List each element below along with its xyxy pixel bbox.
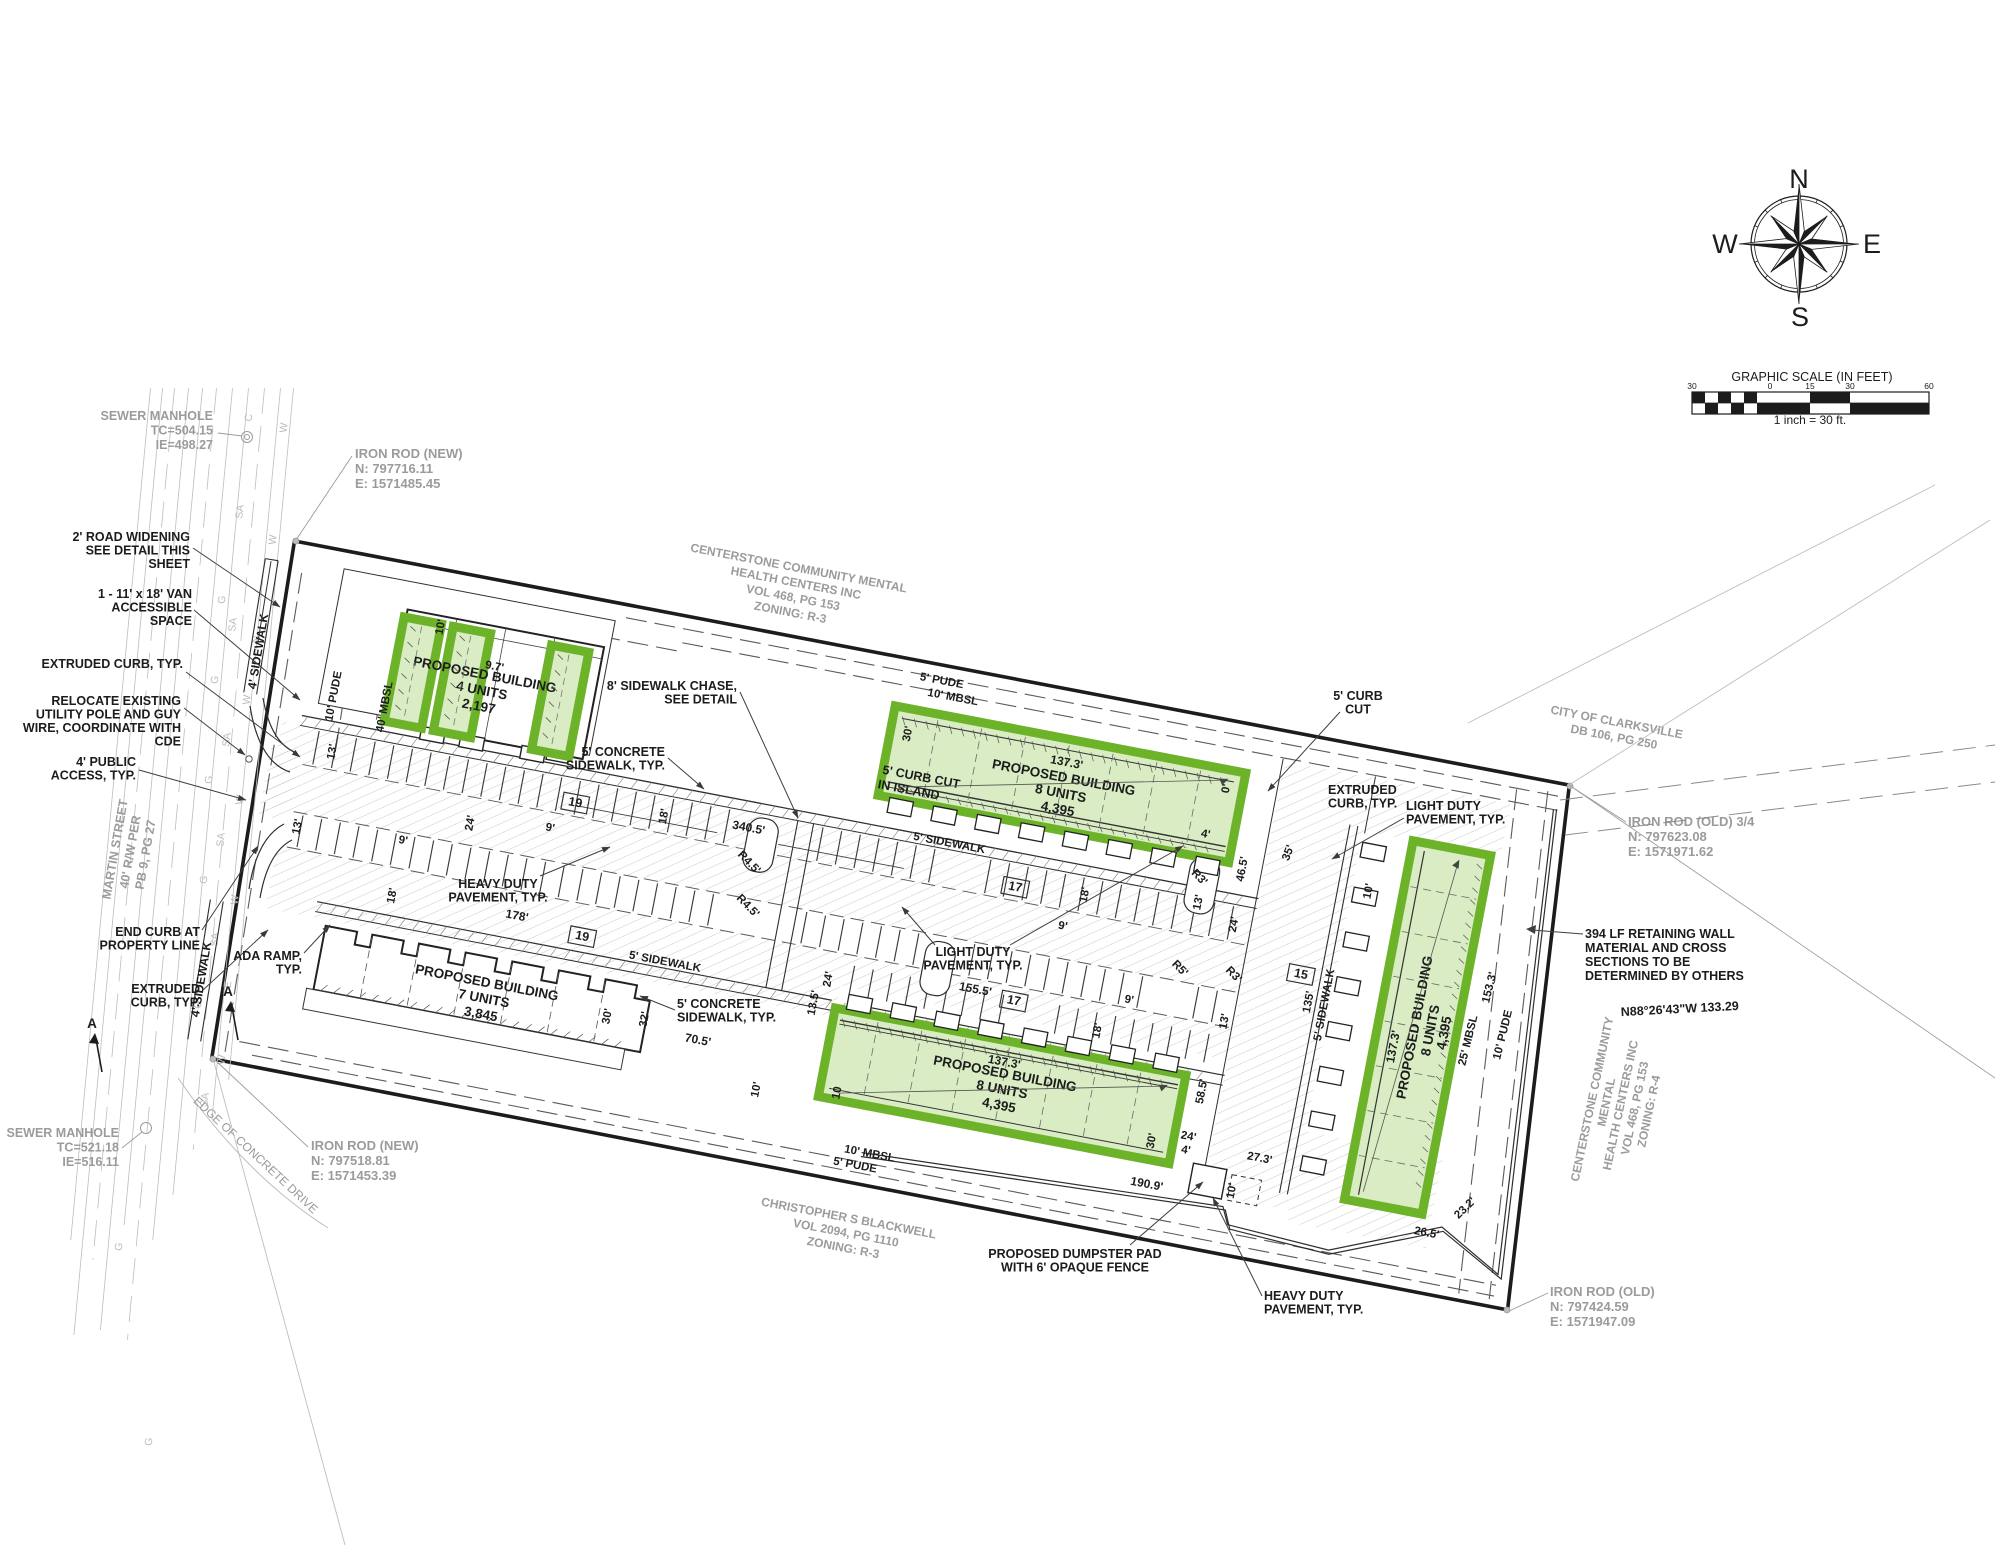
svg-text:SEWER MANHOLE: SEWER MANHOLE	[101, 409, 214, 423]
svg-text:IRON ROD (OLD): IRON ROD (OLD)	[1550, 1284, 1655, 1299]
svg-text:WITH 6' OPAQUE FENCE: WITH 6' OPAQUE FENCE	[1001, 1261, 1149, 1275]
svg-text:WIRE, COORDINATE WITH: WIRE, COORDINATE WITH	[23, 721, 181, 735]
svg-text:2' ROAD WIDENING: 2' ROAD WIDENING	[72, 530, 190, 544]
svg-text:17: 17	[1007, 879, 1023, 895]
svg-text:DETERMINED BY OTHERS: DETERMINED BY OTHERS	[1585, 969, 1744, 983]
svg-text:W: W	[267, 534, 280, 545]
svg-text:N: 797424.59: N: 797424.59	[1550, 1299, 1629, 1314]
svg-text:SHEET: SHEET	[148, 557, 190, 571]
svg-text:HEAVY DUTY: HEAVY DUTY	[458, 877, 538, 891]
svg-text:UTILITY POLE AND GUY: UTILITY POLE AND GUY	[36, 708, 182, 722]
svg-text:SEWER MANHOLE: SEWER MANHOLE	[7, 1126, 120, 1140]
svg-text:G: G	[216, 595, 229, 604]
svg-text:ACCESSIBLE: ACCESSIBLE	[111, 601, 192, 615]
svg-text:5' CONCRETE: 5' CONCRETE	[581, 745, 665, 759]
svg-text:SPACE: SPACE	[150, 614, 192, 628]
svg-text:N: 797518.81: N: 797518.81	[311, 1153, 390, 1168]
svg-text:E: E	[1863, 229, 1881, 259]
svg-text:G: G	[113, 1242, 126, 1251]
svg-text:1 - 11' x 18' VAN: 1 - 11' x 18' VAN	[98, 587, 192, 601]
svg-text:PAVEMENT, TYP.: PAVEMENT, TYP.	[448, 891, 547, 905]
svg-text:HEAVY DUTY: HEAVY DUTY	[1264, 1289, 1344, 1303]
svg-text:IRON ROD (NEW): IRON ROD (NEW)	[311, 1138, 419, 1153]
svg-text:30: 30	[1687, 381, 1697, 391]
svg-text:E: 1571971.62: E: 1571971.62	[1628, 844, 1713, 859]
svg-text:PAVEMENT, TYP.: PAVEMENT, TYP.	[1264, 1303, 1363, 1317]
svg-text:SEE DETAIL THIS: SEE DETAIL THIS	[86, 544, 190, 558]
svg-text:30: 30	[1845, 381, 1855, 391]
svg-text:0: 0	[1768, 381, 1773, 391]
svg-text:W: W	[216, 1054, 229, 1065]
svg-text:TYP.: TYP.	[276, 963, 302, 977]
svg-text:CDE: CDE	[155, 735, 181, 749]
svg-text:19: 19	[567, 794, 583, 810]
svg-text:W: W	[278, 422, 291, 433]
svg-text:SA: SA	[226, 617, 239, 632]
svg-text:E: 1571485.45: E: 1571485.45	[355, 476, 440, 491]
svg-text:EXTRUDED: EXTRUDED	[131, 982, 200, 996]
svg-text:EXTRUDED CURB, TYP.: EXTRUDED CURB, TYP.	[42, 657, 183, 671]
svg-text:N: 797716.11: N: 797716.11	[355, 461, 433, 476]
svg-text:N: N	[1789, 164, 1809, 194]
svg-text:E: 1571947.09: E: 1571947.09	[1550, 1314, 1635, 1329]
svg-text:G: G	[198, 875, 211, 884]
svg-text:PROPOSED DUMPSTER PAD: PROPOSED DUMPSTER PAD	[988, 1247, 1161, 1261]
svg-text:END CURB AT: END CURB AT	[115, 925, 200, 939]
svg-text:CUT: CUT	[1345, 703, 1371, 717]
svg-text:15: 15	[1293, 966, 1309, 982]
svg-text:A: A	[87, 1016, 97, 1031]
svg-text:IE=516.11: IE=516.11	[62, 1155, 119, 1169]
svg-text:ACCESS, TYP.: ACCESS, TYP.	[51, 769, 136, 783]
svg-text:SA: SA	[233, 504, 246, 519]
svg-text:394 LF RETAINING WALL: 394 LF RETAINING WALL	[1585, 927, 1735, 941]
svg-text:1 inch = 30 ft.: 1 inch = 30 ft.	[1774, 413, 1846, 427]
svg-text:PAVEMENT, TYP.: PAVEMENT, TYP.	[1406, 813, 1505, 827]
svg-text:8' SIDEWALK CHASE,: 8' SIDEWALK CHASE,	[607, 679, 737, 693]
svg-text:60: 60	[1924, 381, 1934, 391]
svg-text:G: G	[143, 1437, 156, 1446]
svg-text:LIGHT DUTY: LIGHT DUTY	[936, 945, 1012, 959]
svg-text:PROPERTY LINE: PROPERTY LINE	[100, 939, 200, 953]
svg-text:5' CONCRETE: 5' CONCRETE	[677, 997, 761, 1011]
svg-text:TC=521.18: TC=521.18	[57, 1141, 119, 1155]
svg-text:W: W	[1712, 229, 1738, 259]
svg-text:17: 17	[1006, 992, 1022, 1008]
svg-text:E: 1571453.39: E: 1571453.39	[311, 1168, 396, 1183]
svg-text:A: A	[223, 984, 233, 999]
svg-text:SIDEWALK, TYP.: SIDEWALK, TYP.	[677, 1011, 776, 1025]
svg-text:IE=498.27: IE=498.27	[156, 438, 213, 452]
svg-text:N: 797623.08: N: 797623.08	[1628, 829, 1707, 844]
svg-text:EXTRUDED: EXTRUDED	[1328, 783, 1397, 797]
svg-text:LIGHT DUTY: LIGHT DUTY	[1406, 799, 1482, 813]
svg-text:W: W	[241, 694, 254, 705]
svg-text:TC=504.15: TC=504.15	[151, 424, 213, 438]
svg-text:MATERIAL AND CROSS: MATERIAL AND CROSS	[1585, 941, 1726, 955]
svg-text:CURB, TYP.: CURB, TYP.	[1328, 797, 1397, 811]
svg-text:SEE DETAIL: SEE DETAIL	[664, 693, 737, 707]
svg-text:PAVEMENT, TYP.: PAVEMENT, TYP.	[923, 959, 1022, 973]
svg-text:G: G	[203, 775, 216, 784]
svg-text:5' CURB: 5' CURB	[1333, 689, 1383, 703]
svg-text:ADA RAMP,: ADA RAMP,	[233, 949, 302, 963]
svg-text:IRON ROD (NEW): IRON ROD (NEW)	[355, 446, 463, 461]
svg-text:IRON ROD (OLD) 3/4: IRON ROD (OLD) 3/4	[1628, 814, 1755, 829]
svg-text:SECTIONS TO BE: SECTIONS TO BE	[1585, 955, 1690, 969]
svg-text:CURB, TYP.: CURB, TYP.	[131, 996, 200, 1010]
svg-text:19: 19	[574, 928, 590, 944]
svg-text:RELOCATE EXISTING: RELOCATE EXISTING	[51, 694, 181, 708]
svg-text:15: 15	[1805, 381, 1815, 391]
svg-text:SIDEWALK, TYP.: SIDEWALK, TYP.	[566, 759, 665, 773]
svg-text:W: W	[229, 894, 242, 905]
svg-text:G: G	[209, 675, 222, 684]
svg-text:4' PUBLIC: 4' PUBLIC	[76, 755, 136, 769]
svg-text:SA: SA	[214, 832, 227, 847]
svg-text:S: S	[1791, 302, 1809, 332]
